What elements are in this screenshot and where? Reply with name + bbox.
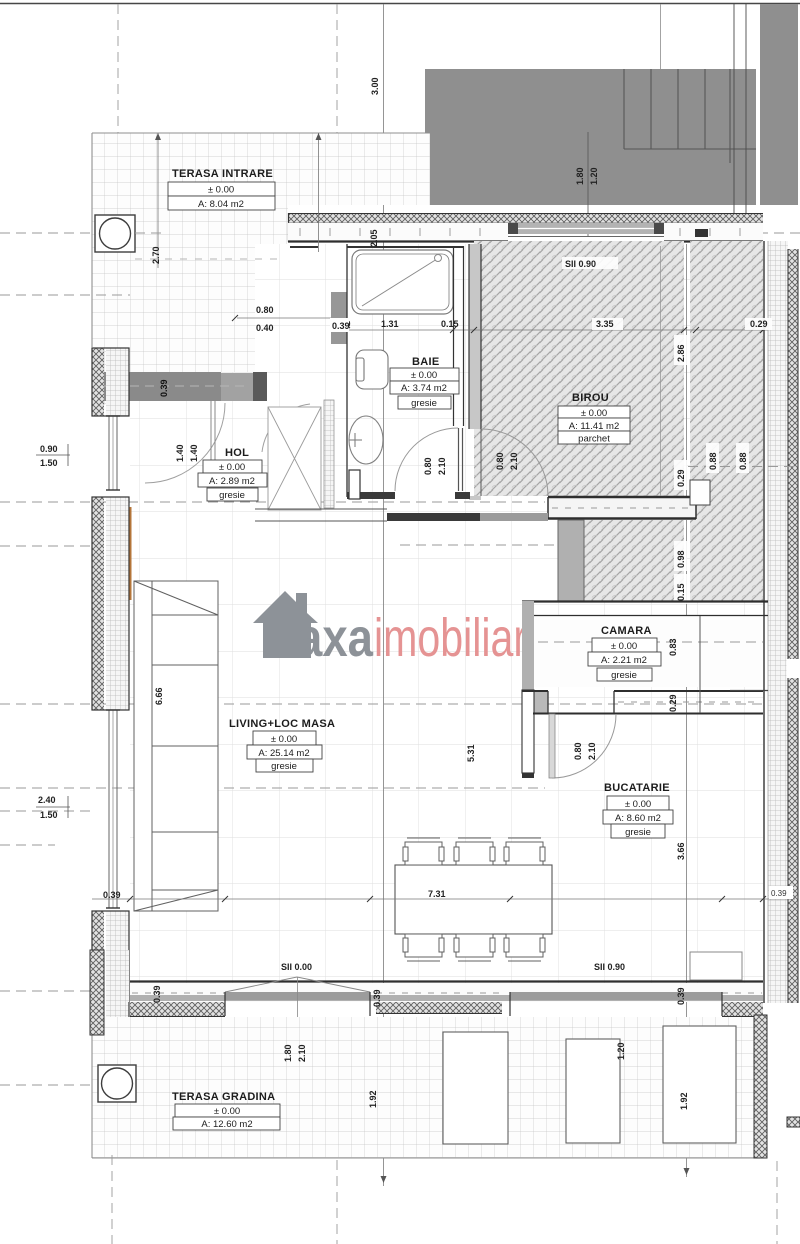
svg-text:1.20: 1.20 xyxy=(616,1042,626,1060)
svg-text:1.92: 1.92 xyxy=(679,1092,689,1110)
svg-text:3.66: 3.66 xyxy=(676,842,686,860)
svg-text:A: 12.60 m2: A: 12.60 m2 xyxy=(201,1119,252,1130)
svg-text:A: 8.04 m2: A: 8.04 m2 xyxy=(198,199,244,210)
svg-text:1.40: 1.40 xyxy=(175,444,185,462)
svg-text:0.39: 0.39 xyxy=(159,379,169,397)
svg-text:TERASA INTRARE: TERASA INTRARE xyxy=(172,168,273,180)
svg-text:0.29: 0.29 xyxy=(676,469,686,487)
svg-text:2.40: 2.40 xyxy=(38,795,56,805)
svg-text:1.31: 1.31 xyxy=(381,319,399,329)
svg-text:2.10: 2.10 xyxy=(587,742,597,760)
svg-text:0.39: 0.39 xyxy=(332,321,350,331)
svg-text:0.39: 0.39 xyxy=(676,987,686,1005)
svg-text:0.40: 0.40 xyxy=(256,323,274,333)
svg-text:2.10: 2.10 xyxy=(297,1044,307,1062)
svg-text:0.39: 0.39 xyxy=(152,985,162,1003)
svg-text:0.88: 0.88 xyxy=(708,452,718,470)
svg-text:HOL: HOL xyxy=(225,447,249,459)
svg-text:0.39: 0.39 xyxy=(103,890,121,900)
svg-text:0.88: 0.88 xyxy=(738,452,748,470)
svg-text:0.80: 0.80 xyxy=(495,452,505,470)
svg-text:LIVING+LOC MASA: LIVING+LOC MASA xyxy=(229,718,335,730)
svg-text:A: 25.14 m2: A: 25.14 m2 xyxy=(258,748,309,759)
svg-text:0.39: 0.39 xyxy=(771,889,787,898)
svg-text:0.80: 0.80 xyxy=(256,305,274,315)
svg-text:SII 0.90: SII 0.90 xyxy=(565,259,596,269)
svg-text:2.05: 2.05 xyxy=(369,229,379,247)
svg-text:1.40: 1.40 xyxy=(189,444,199,462)
svg-text:6.66: 6.66 xyxy=(154,687,164,705)
svg-text:1.50: 1.50 xyxy=(40,458,58,468)
svg-text:± 0.00: ± 0.00 xyxy=(581,408,607,419)
svg-text:2.10: 2.10 xyxy=(437,457,447,475)
svg-text:0.80: 0.80 xyxy=(423,457,433,475)
svg-text:gresie: gresie xyxy=(219,490,245,501)
svg-text:A: 2.21 m2: A: 2.21 m2 xyxy=(601,655,647,666)
svg-text:0.15: 0.15 xyxy=(676,583,686,601)
svg-text:± 0.00: ± 0.00 xyxy=(208,185,234,196)
svg-text:± 0.00: ± 0.00 xyxy=(271,734,297,745)
svg-text:± 0.00: ± 0.00 xyxy=(214,1106,240,1117)
svg-text:A: 11.41 m2: A: 11.41 m2 xyxy=(569,421,620,432)
svg-text:± 0.00: ± 0.00 xyxy=(219,462,245,473)
svg-text:1.80: 1.80 xyxy=(283,1044,293,1062)
svg-text:0.98: 0.98 xyxy=(676,550,686,568)
svg-text:0.29: 0.29 xyxy=(750,319,768,329)
svg-text:3.00: 3.00 xyxy=(370,77,380,95)
svg-text:± 0.00: ± 0.00 xyxy=(625,799,651,810)
svg-text:axa: axa xyxy=(297,608,374,668)
svg-text:gresie: gresie xyxy=(411,398,437,409)
svg-text:0.83: 0.83 xyxy=(668,638,678,656)
svg-text:1.80: 1.80 xyxy=(575,167,585,185)
svg-text:TERASA GRADINA: TERASA GRADINA xyxy=(172,1091,275,1103)
svg-text:A: 8.60 m2: A: 8.60 m2 xyxy=(615,813,661,824)
svg-text:± 0.00: ± 0.00 xyxy=(611,641,637,652)
svg-text:BUCATARIE: BUCATARIE xyxy=(604,782,670,794)
svg-text:1.92: 1.92 xyxy=(368,1090,378,1108)
svg-text:0.80: 0.80 xyxy=(573,742,583,760)
svg-text:A: 3.74 m2: A: 3.74 m2 xyxy=(401,383,447,394)
svg-text:BAIE: BAIE xyxy=(412,356,439,368)
svg-text:3.35: 3.35 xyxy=(596,319,614,329)
svg-text:5.31: 5.31 xyxy=(466,744,476,762)
svg-text:2.10: 2.10 xyxy=(509,452,519,470)
svg-text:2.70: 2.70 xyxy=(151,246,161,264)
svg-text:CAMARA: CAMARA xyxy=(601,625,652,637)
svg-text:gresie: gresie xyxy=(271,761,297,772)
svg-text:± 0.00: ± 0.00 xyxy=(411,370,437,381)
svg-text:1.50: 1.50 xyxy=(40,810,58,820)
svg-text:gresie: gresie xyxy=(611,670,637,681)
svg-text:gresie: gresie xyxy=(625,827,651,838)
svg-text:SII 0.90: SII 0.90 xyxy=(594,962,625,972)
svg-text:1.20: 1.20 xyxy=(589,167,599,185)
svg-text:2.86: 2.86 xyxy=(676,344,686,362)
svg-text:A: 2.89 m2: A: 2.89 m2 xyxy=(209,476,255,487)
svg-text:0.90: 0.90 xyxy=(40,444,58,454)
svg-text:parchet: parchet xyxy=(578,434,610,445)
svg-text:7.31: 7.31 xyxy=(428,889,446,899)
svg-text:0.39: 0.39 xyxy=(372,989,382,1007)
svg-text:SII 0.00: SII 0.00 xyxy=(281,962,312,972)
svg-text:0.29: 0.29 xyxy=(668,694,678,712)
svg-text:BIROU: BIROU xyxy=(572,392,609,404)
